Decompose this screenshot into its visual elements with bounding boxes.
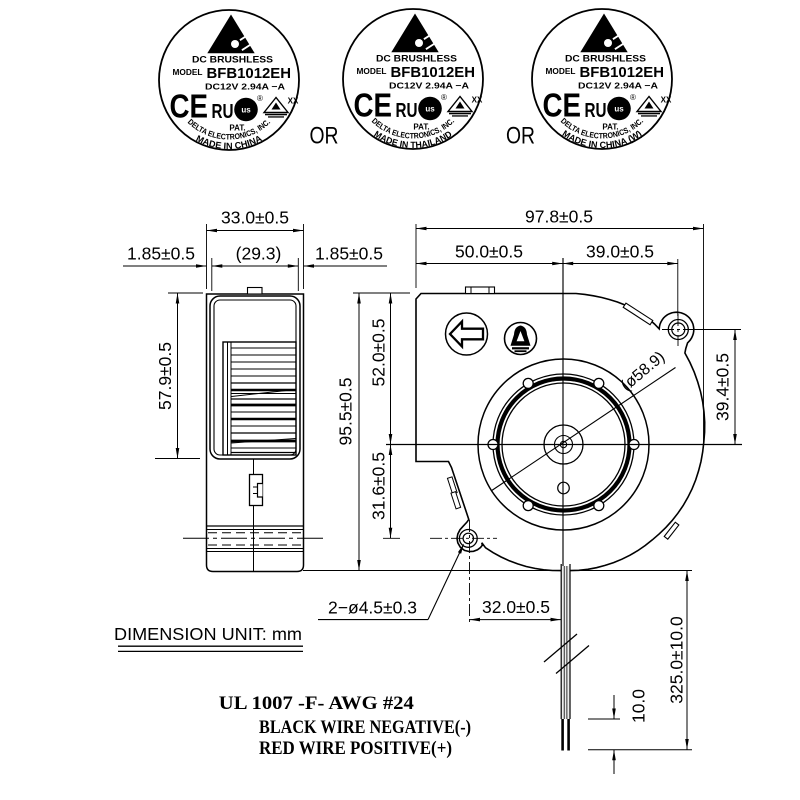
svg-text:CE: CE — [543, 87, 582, 124]
svg-text:DIMENSION UNIT: mm: DIMENSION UNIT: mm — [114, 624, 302, 644]
svg-text:BFB1012EH: BFB1012EH — [207, 66, 292, 82]
svg-text:®: ® — [257, 94, 263, 103]
svg-text:52.0±0.5: 52.0±0.5 — [369, 319, 389, 387]
svg-text:RU: RU — [396, 100, 418, 122]
svg-text:95.5±0.5: 95.5±0.5 — [336, 378, 356, 446]
svg-text:OR: OR — [310, 123, 339, 150]
svg-text:us: us — [241, 106, 251, 115]
svg-text:XX: XX — [472, 96, 483, 105]
svg-text:OR: OR — [506, 123, 535, 150]
svg-text:DC12V 2.94A −A: DC12V 2.94A −A — [389, 81, 469, 91]
svg-text:2−ø4.5±0.3: 2−ø4.5±0.3 — [328, 598, 417, 618]
svg-text:32.0±0.5: 32.0±0.5 — [482, 597, 550, 617]
svg-text:DC BRUSHLESS: DC BRUSHLESS — [565, 54, 646, 65]
svg-text:XX: XX — [661, 96, 672, 105]
svg-text:BLACK WIRE NEGATIVE(-): BLACK WIRE NEGATIVE(-) — [259, 717, 471, 738]
svg-text:DC BRUSHLESS: DC BRUSHLESS — [192, 55, 273, 66]
svg-text:DC12V 2.94A −A: DC12V 2.94A −A — [205, 82, 285, 92]
svg-text:CE: CE — [170, 88, 209, 125]
svg-text:10.0: 10.0 — [629, 689, 649, 723]
svg-text:57.9±0.5: 57.9±0.5 — [155, 342, 175, 410]
svg-text:MODEL: MODEL — [546, 67, 576, 76]
svg-text:1.85±0.5: 1.85±0.5 — [127, 244, 195, 264]
svg-text:RU: RU — [212, 101, 234, 123]
svg-text:1.85±0.5: 1.85±0.5 — [315, 244, 383, 264]
svg-text:UL 1007 -F- AWG #24: UL 1007 -F- AWG #24 — [219, 693, 415, 714]
svg-text:®: ® — [630, 93, 636, 102]
svg-text:MODEL: MODEL — [173, 68, 203, 77]
svg-text:97.8±0.5: 97.8±0.5 — [525, 207, 593, 227]
svg-text:(29.3): (29.3) — [236, 244, 282, 264]
svg-text:31.6±0.5: 31.6±0.5 — [369, 452, 389, 520]
svg-text:us: us — [614, 105, 624, 114]
svg-text:RU: RU — [585, 100, 607, 122]
svg-text:50.0±0.5: 50.0±0.5 — [455, 242, 523, 262]
svg-text:®: ® — [441, 93, 447, 102]
svg-text:us: us — [425, 105, 435, 114]
svg-text:DC12V 2.94A −A: DC12V 2.94A −A — [578, 81, 658, 91]
svg-text:RED WIRE POSITIVE(+): RED WIRE POSITIVE(+) — [259, 738, 452, 759]
svg-text:CE: CE — [354, 87, 393, 124]
svg-text:325.0±10.0: 325.0±10.0 — [667, 616, 687, 704]
svg-text:39.0±0.5: 39.0±0.5 — [586, 242, 654, 262]
svg-text:39.4±0.5: 39.4±0.5 — [713, 353, 733, 421]
svg-text:33.0±0.5: 33.0±0.5 — [221, 208, 289, 228]
svg-text:XX: XX — [288, 97, 299, 106]
svg-text:BFB1012EH: BFB1012EH — [391, 65, 476, 81]
svg-text:DC BRUSHLESS: DC BRUSHLESS — [376, 54, 457, 65]
svg-text:BFB1012EH: BFB1012EH — [580, 65, 665, 81]
svg-text:MODEL: MODEL — [357, 67, 387, 76]
